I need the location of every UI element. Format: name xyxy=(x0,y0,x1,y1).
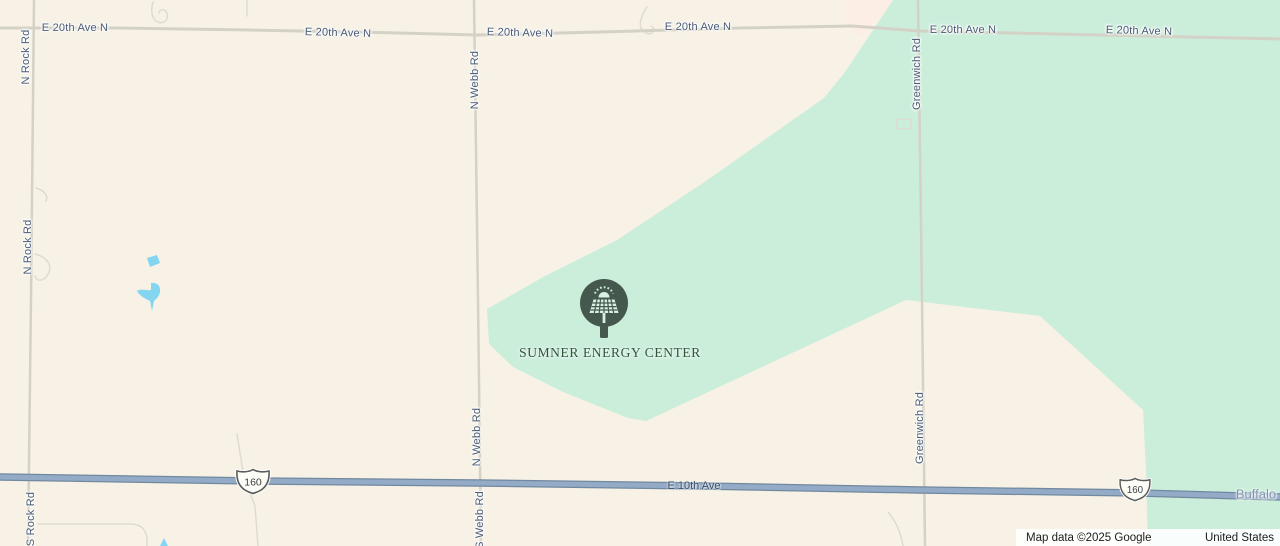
solar-panel-marker-icon xyxy=(580,279,628,341)
map-data-credit: Map data ©2025 Google xyxy=(1026,532,1151,544)
region-label: United States xyxy=(1205,532,1274,544)
road-label-greenwich-2: Greenwich Rd xyxy=(914,392,926,464)
route-shield-160-east: 160 xyxy=(1117,477,1153,502)
minor-road-greenwich-stub xyxy=(888,512,903,546)
road-label-webb-n-2: N Webb Rd xyxy=(471,408,483,466)
road-label-e20th-5: E 20th Ave N xyxy=(930,24,996,36)
poi-label-sumner-energy-center: SUMNER ENERGY CENTER xyxy=(519,345,701,361)
road-label-e20th-4: E 20th Ave N xyxy=(665,21,731,33)
road-label-rock-n-2: N Rock Rd xyxy=(22,220,34,275)
road-label-rock-s: S Rock Rd xyxy=(25,492,37,546)
stream-loop xyxy=(152,2,168,23)
stream-hook-rock-1 xyxy=(36,188,47,201)
road-label-e20th-1: E 20th Ave N xyxy=(42,22,108,34)
shield-number: 160 xyxy=(1127,485,1144,496)
route-shield-160-west: 160 xyxy=(234,468,272,495)
road-label-rock-n-1: N Rock Rd xyxy=(20,30,32,85)
pond-small xyxy=(147,255,160,267)
map-canvas[interactable]: E 20th Ave N E 20th Ave N E 20th Ave N E… xyxy=(0,0,1280,546)
town-label-buffalo: Buffalo xyxy=(1236,487,1276,502)
road-label-greenwich-1: Greenwich Rd xyxy=(911,38,923,110)
road-label-e20th-3: E 20th Ave N xyxy=(487,26,554,40)
road-label-e10th-ave: E 10th Ave xyxy=(667,480,720,492)
pond-bottom-edge xyxy=(160,538,168,546)
map-terrain-layer xyxy=(0,0,1280,546)
greenspace-area xyxy=(487,0,1280,546)
highway-160-fill xyxy=(0,477,1280,497)
minor-road-bottom-left xyxy=(38,524,147,546)
stream-hook-rock-2 xyxy=(35,254,50,280)
road-label-e20th-6: E 20th Ave N xyxy=(1106,24,1173,38)
road-label-e20th-2: E 20th Ave N xyxy=(305,26,372,40)
shield-number: 160 xyxy=(244,477,262,489)
road-label-webb-s: S Webb Rd xyxy=(474,491,486,546)
road-label-webb-n-1: N Webb Rd xyxy=(469,51,481,109)
pond-large xyxy=(137,283,160,311)
attribution-bar: Map data ©2025 Google United States xyxy=(1016,529,1280,546)
poi-marker-sumner-energy-center[interactable] xyxy=(580,279,628,341)
